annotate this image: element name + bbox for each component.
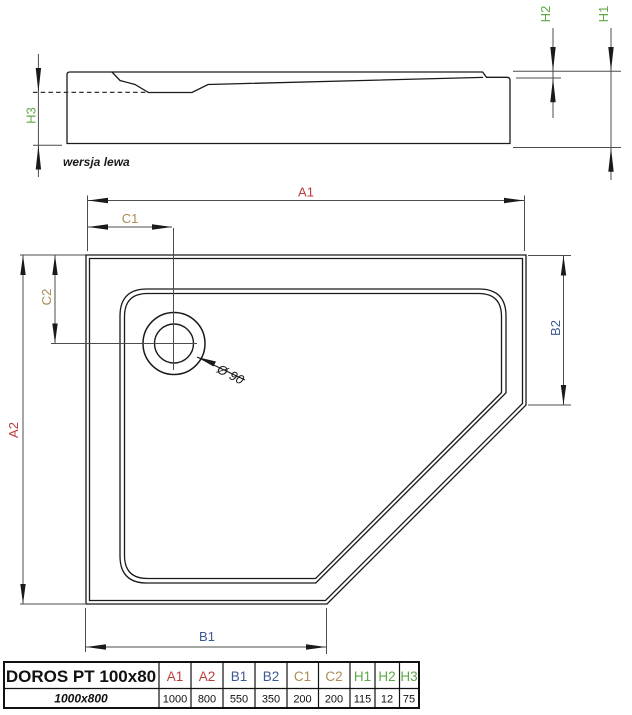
svg-text:A2: A2: [199, 669, 216, 684]
svg-text:A1: A1: [298, 185, 314, 200]
svg-text:1000: 1000: [163, 694, 187, 706]
svg-text:H1: H1: [596, 6, 611, 23]
svg-text:B1: B1: [231, 669, 248, 684]
svg-text:1000x800: 1000x800: [54, 692, 108, 706]
svg-text:200: 200: [293, 694, 311, 706]
svg-text:H1: H1: [354, 669, 371, 684]
svg-text:200: 200: [325, 694, 343, 706]
svg-text:C1: C1: [122, 211, 139, 226]
svg-text:B1: B1: [199, 629, 215, 644]
svg-text:115: 115: [354, 694, 372, 706]
svg-text:B2: B2: [263, 669, 280, 684]
svg-text:12: 12: [381, 694, 393, 706]
svg-text:H2: H2: [538, 6, 553, 23]
svg-text:A1: A1: [167, 669, 184, 684]
svg-text:550: 550: [230, 694, 248, 706]
svg-text:H3: H3: [400, 669, 417, 684]
svg-text:B2: B2: [548, 320, 563, 336]
svg-text:C2: C2: [39, 289, 54, 306]
svg-text:H3: H3: [24, 107, 39, 124]
svg-text:350: 350: [262, 694, 280, 706]
svg-text:H2: H2: [378, 669, 395, 684]
svg-text:C2: C2: [325, 669, 342, 684]
svg-text:800: 800: [198, 694, 216, 706]
svg-text:DOROS PT 100x80: DOROS PT 100x80: [6, 667, 156, 686]
svg-text:wersja lewa: wersja lewa: [63, 155, 130, 169]
svg-text:C1: C1: [294, 669, 311, 684]
svg-text:A2: A2: [6, 422, 21, 438]
svg-text:75: 75: [403, 694, 415, 706]
